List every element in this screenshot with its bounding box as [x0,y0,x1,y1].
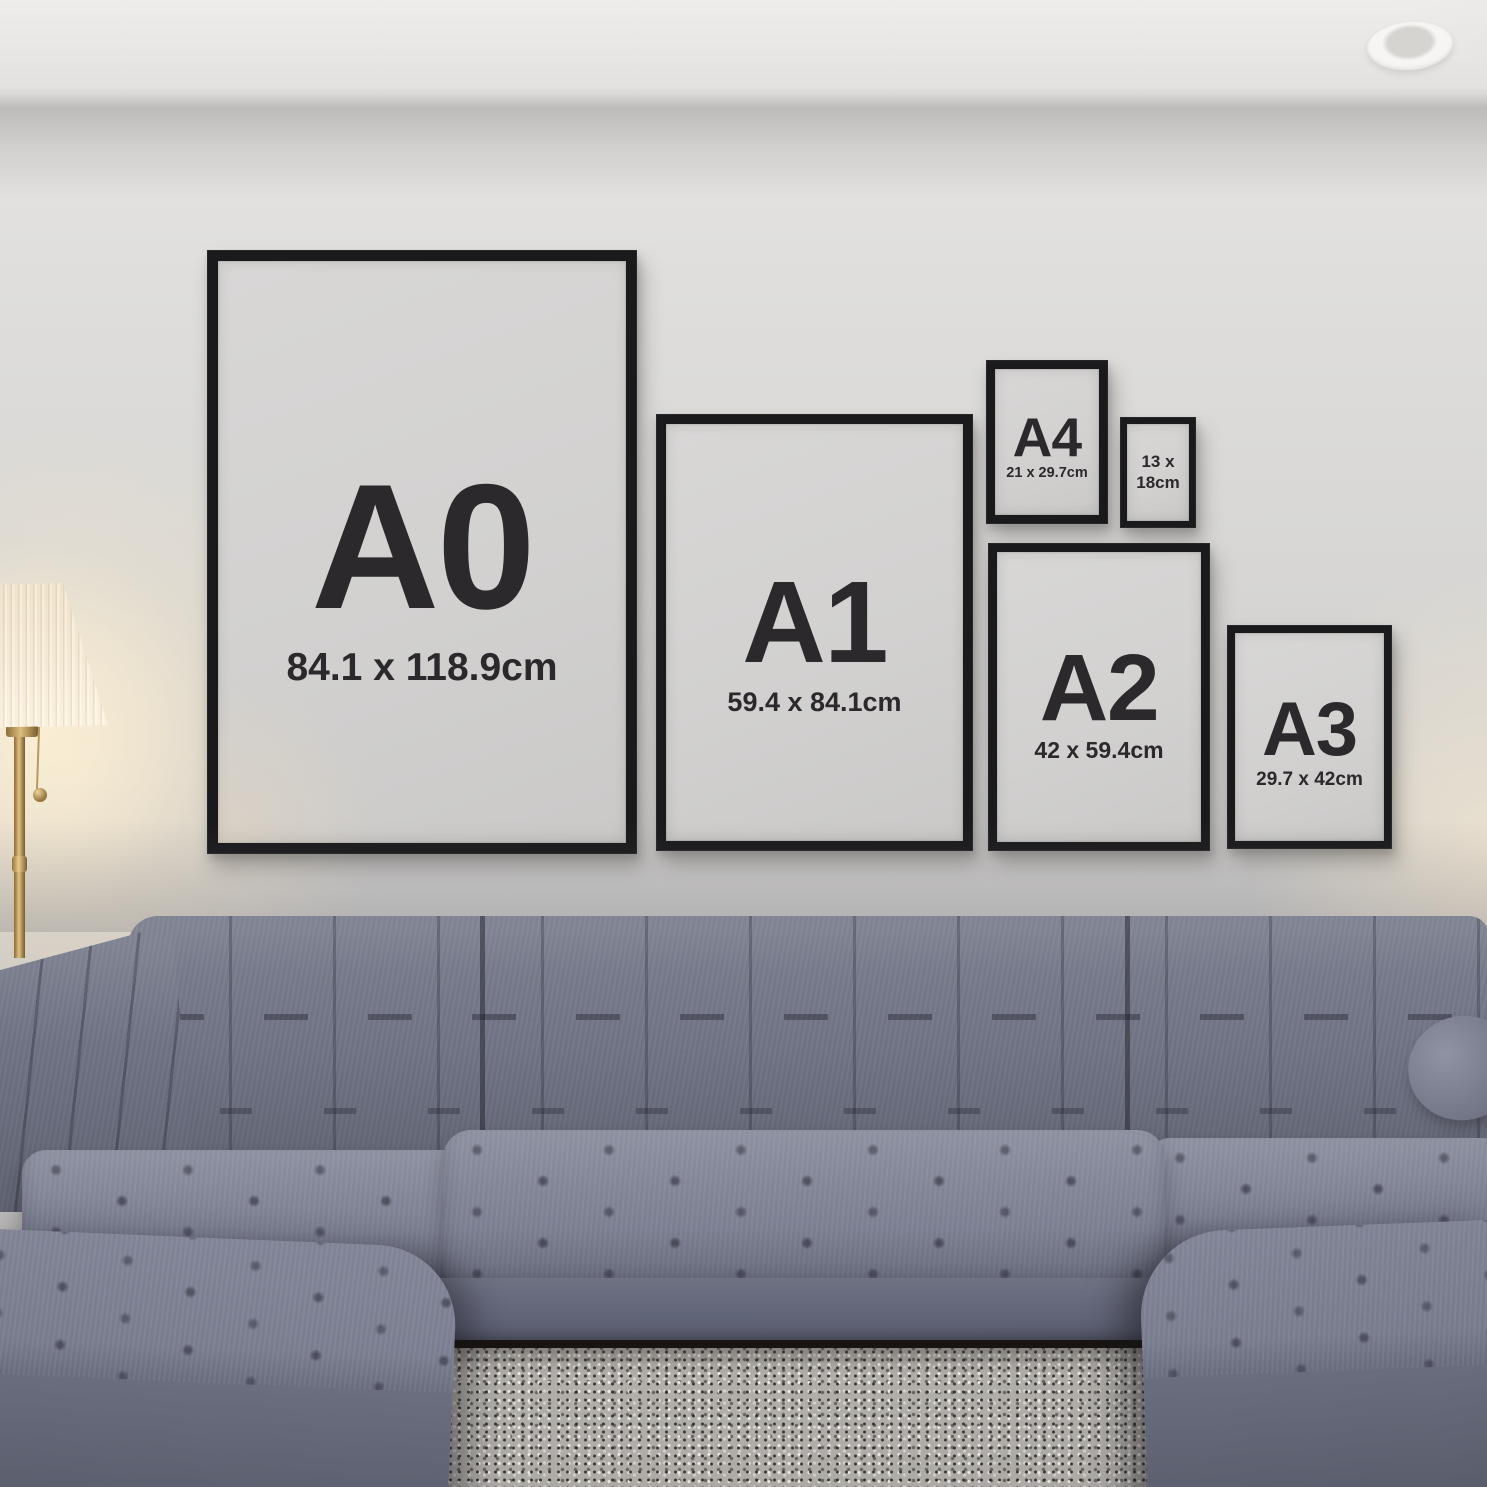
poster-content: 13 x 18cm [1136,452,1179,492]
poster-content: A4 21 x 29.7cm [1006,415,1087,481]
chaise-left-cushion [0,1228,458,1393]
size-dimensions-a2: 42 x 59.4cm [1034,737,1163,764]
size-label-a3: A3 [1262,699,1357,761]
chaise-right [1138,1219,1487,1487]
lamp-pole-joint [12,856,27,872]
poster-paper: A2 42 x 59.4cm [997,552,1201,842]
size-label-a1: A1 [742,575,887,670]
ceiling [0,0,1487,92]
poster-frame-13x18: 13 x 18cm [1120,417,1196,528]
poster-frame-a1: A1 59.4 x 84.1cm [656,414,973,851]
lamp-pole [14,733,25,958]
poster-content: A0 84.1 x 118.9cm [286,474,557,690]
poster-frame-a3: A3 29.7 x 42cm [1227,625,1392,849]
seat-cushion-center [443,1130,1165,1292]
poster-content: A3 29.7 x 42cm [1256,699,1363,791]
poster-paper: 13 x 18cm [1127,424,1189,521]
poster-paper: A1 59.4 x 84.1cm [666,424,963,841]
rug [320,1348,1286,1487]
size-label-a4: A4 [1013,415,1082,460]
poster-paper: A4 21 x 29.7cm [995,369,1099,515]
chaise-left [0,1228,458,1487]
chaise-right-cushion [1138,1219,1487,1378]
size-dimensions-a3: 29.7 x 42cm [1256,769,1363,791]
poster-content: A1 59.4 x 84.1cm [727,575,901,717]
poster-frame-a2: A2 42 x 59.4cm [988,543,1210,851]
size-dimensions-a4: 21 x 29.7cm [1006,465,1087,481]
lamp-pull-chain-ball [33,788,47,802]
size-dimensions-13x18-line1: 13 x [1141,452,1174,472]
poster-paper: A0 84.1 x 118.9cm [218,261,626,843]
ceiling-wall-shadow [0,88,1487,198]
poster-frame-a0: A0 84.1 x 118.9cm [207,250,637,854]
size-label-a0: A0 [311,474,533,620]
size-dimensions-a0: 84.1 x 118.9cm [286,646,557,690]
size-dimensions-13x18-line2: 18cm [1136,473,1179,493]
poster-content: A2 42 x 59.4cm [1034,650,1163,765]
poster-frame-a4: A4 21 x 29.7cm [986,360,1108,524]
living-room-scene: A0 84.1 x 118.9cm A1 59.4 x 84.1cm A4 21… [0,0,1487,1487]
poster-paper: A3 29.7 x 42cm [1235,633,1384,841]
size-label-a2: A2 [1040,650,1159,728]
size-dimensions-a1: 59.4 x 84.1cm [727,687,901,718]
